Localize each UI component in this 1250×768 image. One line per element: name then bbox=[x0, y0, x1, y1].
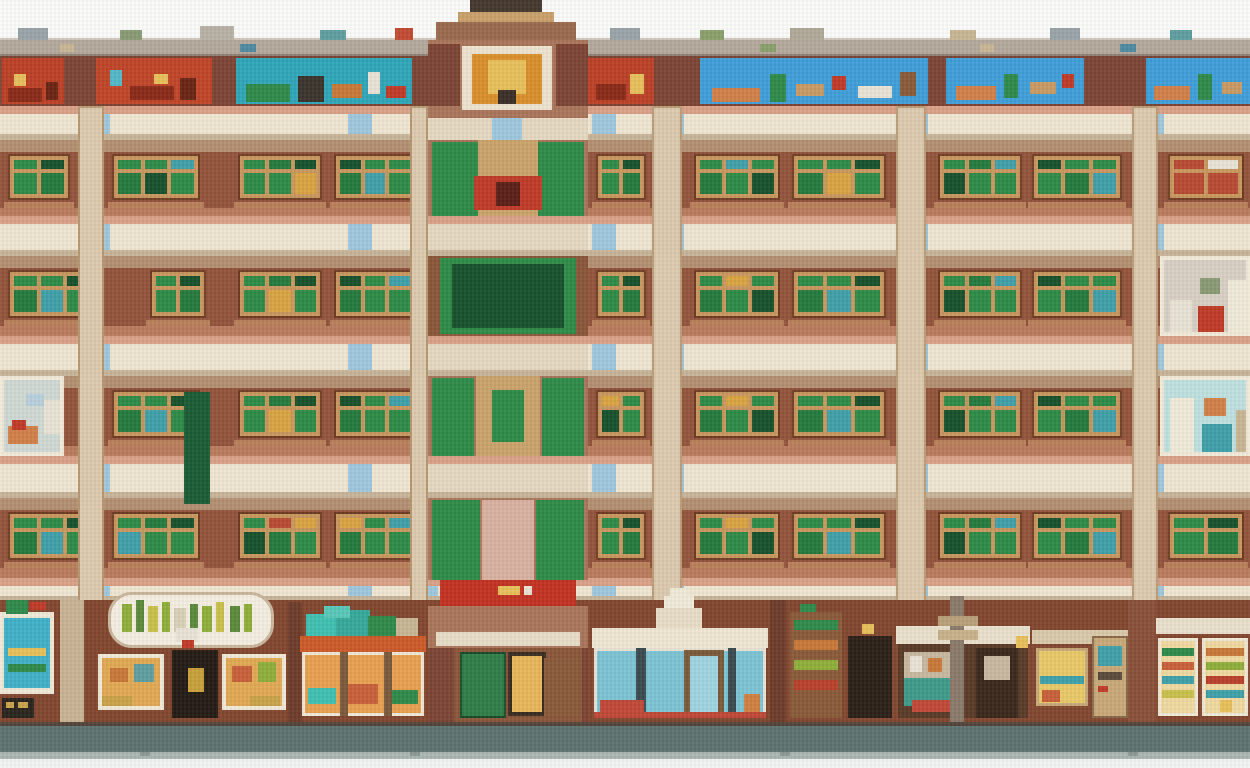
window-pane bbox=[700, 160, 722, 169]
window-pane bbox=[602, 290, 619, 312]
apartment-window bbox=[1032, 154, 1122, 200]
central-tower bbox=[496, 182, 520, 206]
window-sill bbox=[108, 202, 204, 208]
window-sill bbox=[330, 440, 420, 446]
window-pane bbox=[798, 160, 823, 169]
shop-produce-market bbox=[324, 606, 350, 618]
apartment-window bbox=[938, 270, 1022, 318]
window-pane bbox=[14, 518, 37, 528]
window-sill bbox=[1028, 440, 1126, 446]
window-pane bbox=[1208, 518, 1238, 528]
shop-produce-market bbox=[340, 652, 348, 716]
central-tower bbox=[492, 118, 522, 140]
window-sill bbox=[592, 562, 650, 568]
pilaster bbox=[896, 106, 926, 602]
window-pane bbox=[1093, 276, 1116, 286]
window-pane bbox=[269, 290, 290, 312]
window-pane bbox=[145, 396, 168, 406]
band-tile bbox=[592, 224, 616, 250]
apartment-window bbox=[596, 512, 646, 560]
band-tile bbox=[592, 464, 616, 492]
window-pane bbox=[244, 173, 265, 194]
pilaster bbox=[410, 106, 428, 602]
central-tower bbox=[428, 464, 588, 492]
window-pane bbox=[14, 276, 37, 286]
furniture-block bbox=[1236, 410, 1248, 454]
shop-mini-mart bbox=[1162, 648, 1194, 656]
furniture-block bbox=[386, 86, 406, 98]
cutaway-room bbox=[0, 376, 64, 456]
central-tower bbox=[428, 44, 460, 106]
window-sill bbox=[690, 202, 784, 208]
window-pane bbox=[969, 518, 990, 528]
shop-produce-market bbox=[348, 684, 378, 704]
apartment-window bbox=[938, 390, 1022, 438]
window-pane bbox=[1065, 276, 1088, 286]
window-pane bbox=[726, 532, 748, 554]
window-pane bbox=[726, 173, 748, 194]
shop-glass-cafe bbox=[728, 648, 736, 718]
central-tower bbox=[582, 648, 588, 722]
shop-corner-aquarium bbox=[6, 702, 14, 708]
apartment-window bbox=[596, 270, 646, 318]
shop-mini-mart bbox=[1162, 676, 1194, 684]
window-pane bbox=[389, 173, 410, 194]
apartment-window bbox=[938, 154, 1022, 200]
window-sill bbox=[108, 562, 204, 568]
window-pane bbox=[1038, 173, 1061, 194]
curb-seam bbox=[780, 752, 790, 756]
window-pane bbox=[269, 532, 290, 554]
band-tile bbox=[348, 586, 372, 596]
furniture-block bbox=[110, 70, 122, 86]
pixel-building-scene bbox=[0, 0, 1250, 768]
floor-ledge bbox=[0, 216, 1250, 224]
window-pane bbox=[969, 410, 990, 432]
shop-brick-shelves bbox=[848, 636, 892, 718]
rooftop-unit bbox=[1050, 28, 1080, 40]
rooftop-unit bbox=[700, 30, 724, 40]
window-pane bbox=[1093, 396, 1116, 406]
window-pane bbox=[1174, 160, 1204, 169]
furniture-block bbox=[1170, 398, 1194, 454]
shop-corner-aquarium bbox=[8, 648, 46, 656]
window-pane bbox=[969, 160, 990, 169]
shop-glass-cafe bbox=[690, 656, 718, 714]
window-pane bbox=[944, 518, 965, 528]
rooftop-unit bbox=[610, 28, 640, 40]
window-pane bbox=[244, 396, 265, 406]
window-pane bbox=[244, 410, 265, 432]
window-pane bbox=[944, 276, 965, 286]
shop-bakery bbox=[110, 668, 128, 682]
window-sill bbox=[690, 320, 784, 326]
window-sill bbox=[330, 320, 420, 326]
window-pane bbox=[798, 290, 823, 312]
window-pane bbox=[1093, 290, 1116, 312]
window-pane bbox=[855, 532, 880, 554]
window-sill bbox=[234, 440, 326, 446]
window-pane bbox=[156, 290, 176, 312]
facade-pier bbox=[1128, 600, 1156, 722]
furniture-block bbox=[12, 420, 26, 430]
window-pane bbox=[602, 396, 619, 406]
window-sill bbox=[4, 202, 74, 208]
apartment-window bbox=[694, 270, 780, 318]
window-pane bbox=[827, 173, 852, 194]
window-pane bbox=[118, 532, 141, 554]
window-pane bbox=[1093, 160, 1116, 169]
window-pane bbox=[855, 173, 880, 194]
window-pane bbox=[295, 532, 316, 554]
shop-produce-market bbox=[396, 618, 418, 636]
window-pane bbox=[995, 396, 1016, 406]
shop-bakery bbox=[102, 696, 132, 706]
window-pane bbox=[798, 276, 823, 286]
apartment-window bbox=[1168, 154, 1244, 200]
apartment-window bbox=[1032, 512, 1122, 560]
window-pane bbox=[389, 160, 410, 169]
furniture-block bbox=[1170, 300, 1192, 334]
window-pane bbox=[752, 276, 774, 286]
window-pane bbox=[118, 410, 141, 432]
apartment-window bbox=[596, 390, 646, 438]
apartment-window bbox=[792, 154, 886, 200]
top-floor-room bbox=[236, 58, 412, 104]
shop-lit-goods bbox=[1042, 690, 1060, 702]
window-sill bbox=[234, 320, 326, 326]
window-pane bbox=[1208, 532, 1238, 554]
window-pane bbox=[752, 173, 774, 194]
window-pane bbox=[798, 532, 823, 554]
sidewalk bbox=[0, 726, 1250, 754]
window-pane bbox=[244, 532, 265, 554]
shop-bakery bbox=[148, 606, 158, 632]
window-sill bbox=[934, 320, 1026, 326]
window-sill bbox=[788, 202, 890, 208]
window-pane bbox=[1038, 290, 1061, 312]
furniture-block bbox=[858, 86, 892, 98]
shop-brick-shelves bbox=[862, 624, 874, 634]
apartment-window bbox=[792, 390, 886, 438]
clerestory-strip bbox=[0, 140, 1250, 152]
central-tower bbox=[538, 142, 584, 216]
window-pane bbox=[340, 396, 361, 406]
pilaster bbox=[652, 106, 682, 602]
furniture-block bbox=[956, 86, 996, 100]
window-pane bbox=[340, 410, 361, 432]
window-pane bbox=[145, 532, 168, 554]
window-pane bbox=[295, 410, 316, 432]
window-pane bbox=[244, 160, 265, 169]
window-pane bbox=[14, 173, 37, 194]
top-floor-room bbox=[96, 58, 212, 104]
central-tower bbox=[460, 652, 506, 718]
window-pane bbox=[827, 276, 852, 286]
window-pane bbox=[269, 173, 290, 194]
window-pane bbox=[41, 532, 64, 554]
window-pane bbox=[602, 276, 619, 286]
window-pane bbox=[995, 290, 1016, 312]
window-pane bbox=[726, 396, 748, 406]
furniture-block bbox=[154, 74, 168, 84]
window-pane bbox=[700, 532, 722, 554]
curb bbox=[0, 752, 1250, 759]
furniture-block bbox=[900, 72, 916, 96]
furniture-block bbox=[1200, 278, 1220, 294]
window-pane bbox=[1208, 173, 1238, 194]
window-pane bbox=[827, 290, 852, 312]
window-pane bbox=[145, 410, 168, 432]
central-tower bbox=[428, 216, 588, 224]
rooftop-unit bbox=[320, 30, 346, 40]
top-floor-room bbox=[1146, 58, 1250, 104]
window-pane bbox=[944, 290, 965, 312]
window-pane bbox=[1038, 160, 1061, 169]
window-sill bbox=[934, 562, 1026, 568]
shop-wood-tavern bbox=[950, 596, 964, 722]
furniture-block bbox=[1004, 74, 1018, 98]
shop-lit-goods bbox=[1098, 686, 1108, 692]
window-pane bbox=[726, 276, 748, 286]
pilaster bbox=[1132, 106, 1158, 602]
window-pane bbox=[623, 160, 640, 169]
window-pane bbox=[365, 173, 386, 194]
apartment-window bbox=[694, 512, 780, 560]
shop-corner-aquarium bbox=[6, 600, 28, 614]
window-pane bbox=[118, 396, 141, 406]
window-pane bbox=[244, 518, 265, 528]
window-pane bbox=[1174, 518, 1204, 528]
window-sill bbox=[788, 440, 890, 446]
window-pane bbox=[340, 160, 361, 169]
window-pane bbox=[41, 276, 64, 286]
window-sill bbox=[234, 202, 326, 208]
window-pane bbox=[1065, 532, 1088, 554]
shop-glass-cafe bbox=[594, 712, 766, 718]
central-tower bbox=[498, 586, 520, 595]
window-pane bbox=[855, 410, 880, 432]
window-pane bbox=[171, 160, 194, 169]
window-sill bbox=[1164, 562, 1248, 568]
window-pane bbox=[295, 173, 316, 194]
window-pane bbox=[602, 173, 619, 194]
window-pane bbox=[969, 290, 990, 312]
window-pane bbox=[752, 410, 774, 432]
apartment-window bbox=[238, 270, 322, 318]
central-tower bbox=[482, 500, 534, 580]
window-pane bbox=[389, 276, 410, 286]
window-pane bbox=[118, 160, 141, 169]
spandrel-strip bbox=[0, 568, 1250, 578]
window-pane bbox=[1065, 396, 1088, 406]
shop-mini-mart bbox=[1162, 690, 1194, 698]
window-pane bbox=[827, 160, 852, 169]
central-tower bbox=[432, 378, 474, 456]
shop-wood-tavern bbox=[938, 616, 978, 626]
cutaway-room bbox=[1160, 376, 1250, 456]
shop-lit-goods bbox=[1098, 672, 1122, 680]
window-pane bbox=[855, 160, 880, 169]
window-pane bbox=[1065, 518, 1088, 528]
window-pane bbox=[180, 290, 200, 312]
window-pane bbox=[944, 173, 965, 194]
window-pane bbox=[602, 532, 619, 554]
window-pane bbox=[798, 518, 823, 528]
floor-ledge bbox=[0, 336, 1250, 344]
shop-glass-cafe bbox=[592, 628, 768, 648]
floor-ledge bbox=[0, 106, 1250, 114]
floor-band bbox=[0, 344, 1250, 370]
window-sill bbox=[1028, 320, 1126, 326]
window-pane bbox=[295, 396, 316, 406]
window-pane bbox=[1093, 410, 1116, 432]
window-pane bbox=[41, 160, 64, 169]
shop-bakery bbox=[258, 662, 276, 682]
band-tile bbox=[348, 464, 372, 492]
window-pane bbox=[171, 518, 194, 528]
window-pane bbox=[389, 518, 410, 528]
central-tower bbox=[428, 224, 588, 250]
window-pane bbox=[827, 396, 852, 406]
shop-glass-cafe bbox=[744, 694, 760, 712]
shop-lit-goods bbox=[1040, 676, 1084, 684]
apartment-window bbox=[334, 270, 416, 318]
window-pane bbox=[365, 276, 386, 286]
window-pane bbox=[726, 160, 748, 169]
window-pane bbox=[798, 173, 823, 194]
window-pane bbox=[726, 290, 748, 312]
window-pane bbox=[752, 160, 774, 169]
window-sill bbox=[690, 562, 784, 568]
apartment-window bbox=[238, 512, 322, 560]
window-pane bbox=[14, 532, 37, 554]
window-pane bbox=[340, 532, 361, 554]
window-pane bbox=[41, 173, 64, 194]
central-tower bbox=[524, 586, 532, 595]
window-pane bbox=[340, 173, 361, 194]
window-pane bbox=[156, 276, 176, 286]
furniture-block bbox=[1228, 280, 1246, 332]
rooftop-sign bbox=[760, 44, 776, 52]
rooftop-sign bbox=[1120, 44, 1136, 52]
facade-pier bbox=[60, 600, 84, 722]
window-pane bbox=[995, 410, 1016, 432]
shop-bakery bbox=[182, 640, 194, 648]
furniture-block bbox=[630, 74, 644, 94]
window-pane bbox=[1038, 396, 1061, 406]
window-pane bbox=[700, 173, 722, 194]
cutaway-room bbox=[1160, 256, 1250, 336]
furniture-block bbox=[298, 76, 324, 102]
window-pane bbox=[700, 290, 722, 312]
window-pane bbox=[995, 276, 1016, 286]
window-pane bbox=[145, 518, 168, 528]
window-pane bbox=[700, 518, 722, 528]
shop-wood-tavern bbox=[910, 656, 922, 672]
shop-glass-cafe bbox=[664, 596, 694, 608]
window-pane bbox=[14, 290, 37, 312]
window-pane bbox=[798, 410, 823, 432]
window-pane bbox=[340, 290, 361, 312]
window-sill bbox=[330, 562, 420, 568]
window-pane bbox=[623, 532, 640, 554]
curb-seam bbox=[410, 752, 420, 756]
window-pane bbox=[995, 532, 1016, 554]
floor-band bbox=[0, 224, 1250, 250]
curb-seam bbox=[1128, 752, 1138, 756]
window-pane bbox=[969, 173, 990, 194]
window-pane bbox=[995, 160, 1016, 169]
green-banner bbox=[184, 392, 210, 504]
curb-seam bbox=[140, 752, 150, 756]
shop-wood-tavern bbox=[912, 700, 950, 712]
window-pane bbox=[1065, 160, 1088, 169]
window-pane bbox=[700, 276, 722, 286]
window-pane bbox=[623, 173, 640, 194]
window-sill bbox=[592, 320, 650, 326]
window-pane bbox=[995, 518, 1016, 528]
apartment-window bbox=[112, 512, 200, 560]
window-pane bbox=[1065, 173, 1088, 194]
rooftop-unit bbox=[120, 30, 142, 40]
central-tower bbox=[556, 44, 588, 106]
window-pane bbox=[1038, 518, 1061, 528]
shop-produce-market bbox=[308, 688, 336, 704]
window-pane bbox=[269, 396, 290, 406]
window-pane bbox=[180, 276, 200, 286]
shop-lit-goods bbox=[1098, 646, 1122, 666]
shop-brick-shelves bbox=[794, 660, 838, 670]
furniture-block bbox=[1202, 424, 1232, 454]
apartment-window bbox=[334, 154, 416, 200]
apartment-window bbox=[1032, 390, 1122, 438]
central-tower bbox=[488, 60, 526, 94]
central-tower bbox=[542, 378, 584, 456]
window-pane bbox=[1038, 276, 1061, 286]
furniture-block bbox=[130, 86, 174, 100]
window-pane bbox=[389, 396, 410, 406]
shop-bakery bbox=[250, 696, 280, 706]
central-tower bbox=[428, 336, 588, 344]
window-pane bbox=[340, 276, 361, 286]
apartment-window bbox=[112, 154, 200, 200]
rooftop-sign bbox=[60, 44, 74, 52]
shop-bakery bbox=[244, 604, 252, 632]
furniture-block bbox=[8, 88, 42, 102]
shop-wood-tavern bbox=[984, 656, 1010, 680]
band-tile bbox=[592, 344, 616, 370]
window-pane bbox=[1208, 160, 1238, 169]
window-pane bbox=[827, 518, 852, 528]
window-pane bbox=[1065, 290, 1088, 312]
window-pane bbox=[969, 396, 990, 406]
rooftop-unit bbox=[200, 26, 234, 40]
rooftop-unit bbox=[18, 28, 48, 40]
spandrel-strip bbox=[0, 326, 1250, 336]
furniture-block bbox=[1222, 82, 1242, 94]
furniture-block bbox=[44, 400, 60, 434]
window-pane bbox=[944, 396, 965, 406]
floor-band-shadow bbox=[0, 250, 1250, 256]
window-pane bbox=[389, 290, 410, 312]
shop-bakery bbox=[202, 606, 212, 632]
window-pane bbox=[365, 160, 386, 169]
window-pane bbox=[855, 396, 880, 406]
central-tower bbox=[436, 22, 576, 42]
window-sill bbox=[592, 440, 650, 446]
window-sill bbox=[330, 202, 420, 208]
